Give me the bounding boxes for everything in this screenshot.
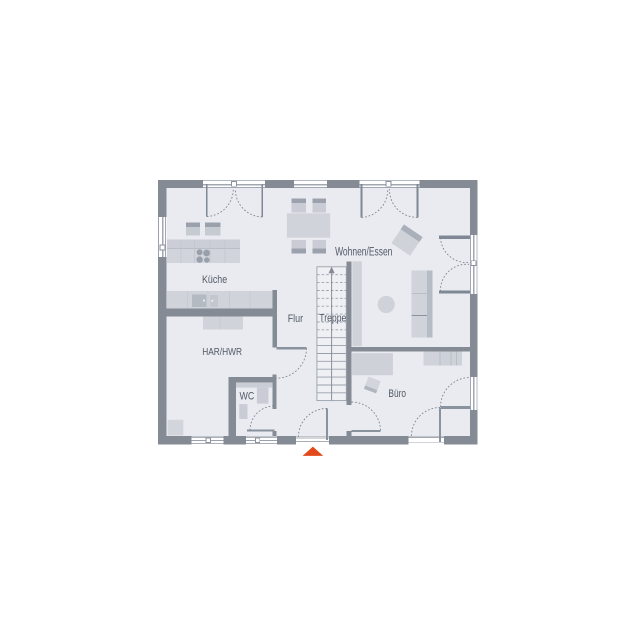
svg-text:Treppe: Treppe [319, 313, 346, 325]
svg-text:Flur: Flur [288, 313, 304, 325]
svg-text:WC: WC [240, 391, 255, 403]
svg-text:HAR/HWR: HAR/HWR [202, 347, 242, 358]
svg-text:Küche: Küche [202, 274, 227, 286]
svg-text:Büro: Büro [388, 388, 406, 400]
svg-text:Wohnen/Essen: Wohnen/Essen [335, 247, 392, 259]
